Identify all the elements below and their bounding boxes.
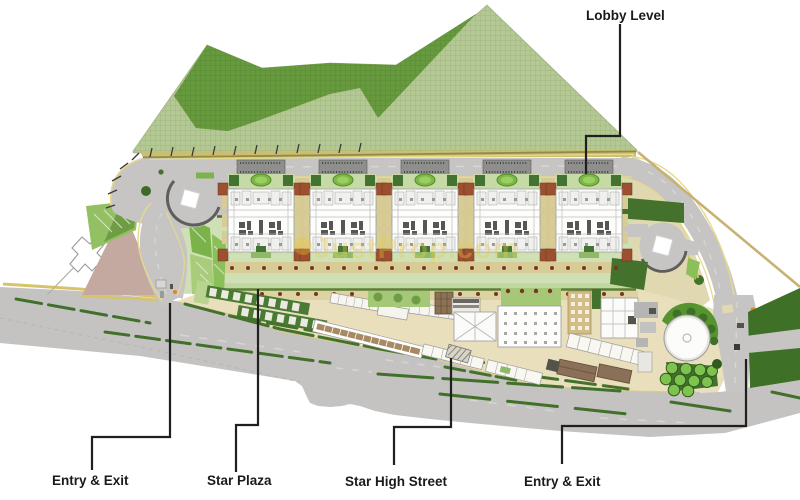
svg-text:Entry & Exit: Entry & Exit	[524, 474, 601, 489]
svg-text:Star High Street: Star High Street	[345, 474, 448, 489]
svg-text:JustProp.com: JustProp.com	[314, 233, 519, 265]
svg-text:Star Plaza: Star Plaza	[207, 473, 272, 488]
svg-text:Entry & Exit: Entry & Exit	[52, 473, 129, 488]
svg-text:Lobby Level: Lobby Level	[586, 8, 665, 23]
